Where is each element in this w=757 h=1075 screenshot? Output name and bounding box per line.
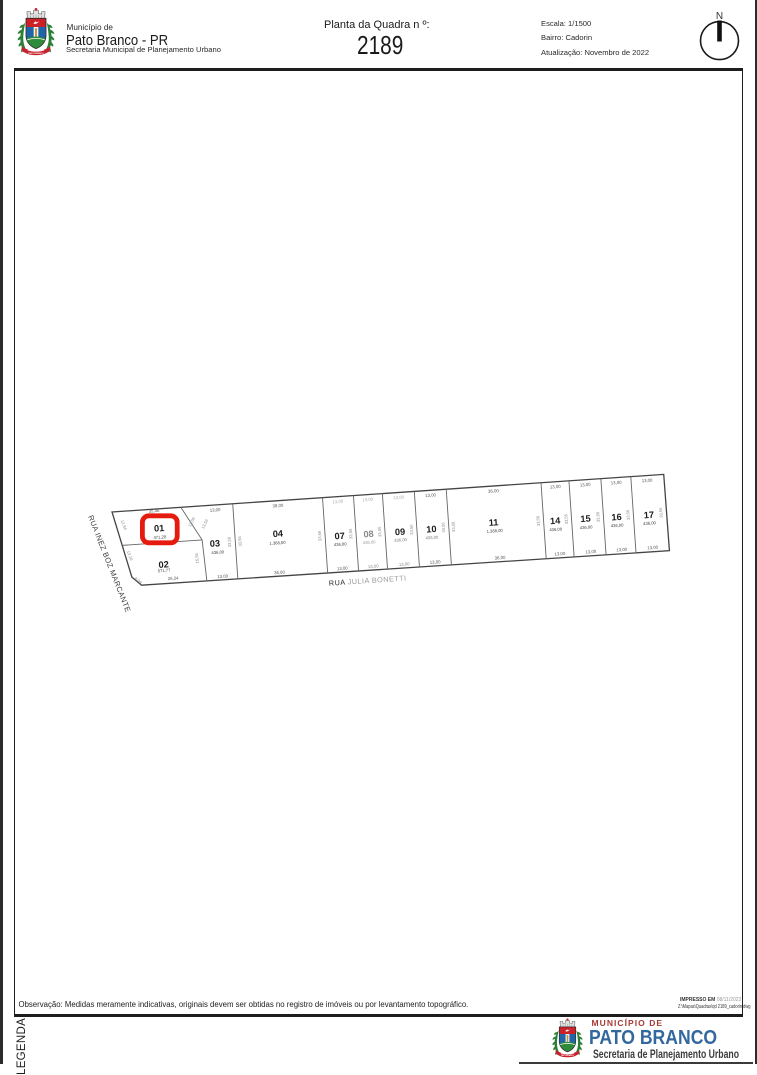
svg-text:16,56: 16,56 [194, 552, 200, 563]
svg-text:13,00: 13,00 [642, 478, 654, 484]
svg-text:33,56: 33,56 [625, 509, 631, 520]
svg-text:26,24: 26,24 [168, 575, 180, 581]
svg-text:13,00: 13,00 [368, 563, 380, 569]
svg-text:14: 14 [550, 515, 562, 526]
svg-text:13,00: 13,00 [430, 559, 442, 565]
svg-text:36,00: 36,00 [494, 555, 506, 561]
svg-text:35,46: 35,46 [148, 508, 160, 514]
svg-text:471,20: 471,20 [153, 534, 167, 540]
svg-text:15: 15 [580, 513, 591, 524]
svg-text:36,00: 36,00 [488, 488, 500, 494]
svg-text:01: 01 [154, 523, 165, 534]
svg-text:33,56: 33,56 [348, 528, 354, 539]
svg-text:09: 09 [395, 527, 406, 538]
svg-text:13,00: 13,00 [585, 549, 597, 555]
svg-text:436,00: 436,00 [611, 522, 625, 528]
svg-text:07: 07 [334, 531, 345, 542]
svg-text:436,00: 436,00 [643, 520, 657, 526]
svg-text:04: 04 [272, 528, 284, 539]
svg-text:33,56: 33,56 [226, 536, 232, 547]
svg-text:13,00: 13,00 [337, 565, 349, 571]
svg-text:13,00: 13,00 [217, 573, 229, 579]
svg-text:436,00: 436,00 [334, 541, 348, 547]
svg-text:436,00: 436,00 [394, 537, 408, 543]
svg-text:13,00: 13,00 [210, 507, 222, 513]
svg-text:13,00: 13,00 [393, 494, 405, 500]
svg-text:33,56: 33,56 [440, 522, 446, 533]
svg-text:33,56: 33,56 [317, 530, 323, 541]
svg-text:13,00: 13,00 [425, 492, 437, 498]
svg-text:38,00: 38,00 [272, 503, 284, 509]
svg-text:33,56: 33,56 [377, 526, 383, 537]
svg-text:13,00: 13,00 [554, 551, 566, 557]
svg-text:436,00: 436,00 [363, 539, 377, 545]
svg-text:436,00: 436,00 [580, 524, 594, 530]
svg-text:33,56: 33,56 [237, 535, 243, 546]
svg-text:436,00: 436,00 [211, 549, 225, 555]
svg-text:10: 10 [426, 524, 437, 535]
svg-text:13,00: 13,00 [611, 480, 623, 486]
svg-text:11: 11 [488, 517, 498, 528]
svg-text:33,56: 33,56 [535, 515, 541, 526]
svg-text:16: 16 [611, 512, 622, 523]
svg-text:436,00: 436,00 [425, 535, 439, 541]
svg-text:33,56: 33,56 [658, 507, 664, 518]
svg-text:13,00: 13,00 [399, 561, 411, 567]
svg-text:03: 03 [209, 538, 220, 549]
svg-text:13,00: 13,00 [647, 545, 659, 551]
svg-text:33,56: 33,56 [595, 511, 601, 522]
svg-text:13,00: 13,00 [550, 484, 562, 490]
svg-text:08: 08 [363, 529, 374, 540]
svg-text:571,77: 571,77 [158, 567, 172, 573]
svg-text:13,00: 13,00 [362, 497, 374, 503]
svg-text:436,00: 436,00 [549, 526, 563, 532]
svg-text:33,56: 33,56 [450, 521, 456, 532]
svg-text:33,56: 33,56 [409, 524, 415, 535]
svg-text:13,00: 13,00 [616, 547, 628, 553]
svg-text:13,00: 13,00 [580, 482, 592, 488]
svg-text:RUA JULIA BONETTI: RUA JULIA BONETTI [329, 573, 407, 587]
svg-text:36,00: 36,00 [274, 570, 286, 576]
svg-text:33,56: 33,56 [563, 513, 569, 524]
svg-text:13,00: 13,00 [332, 499, 344, 505]
svg-text:17: 17 [644, 510, 655, 521]
